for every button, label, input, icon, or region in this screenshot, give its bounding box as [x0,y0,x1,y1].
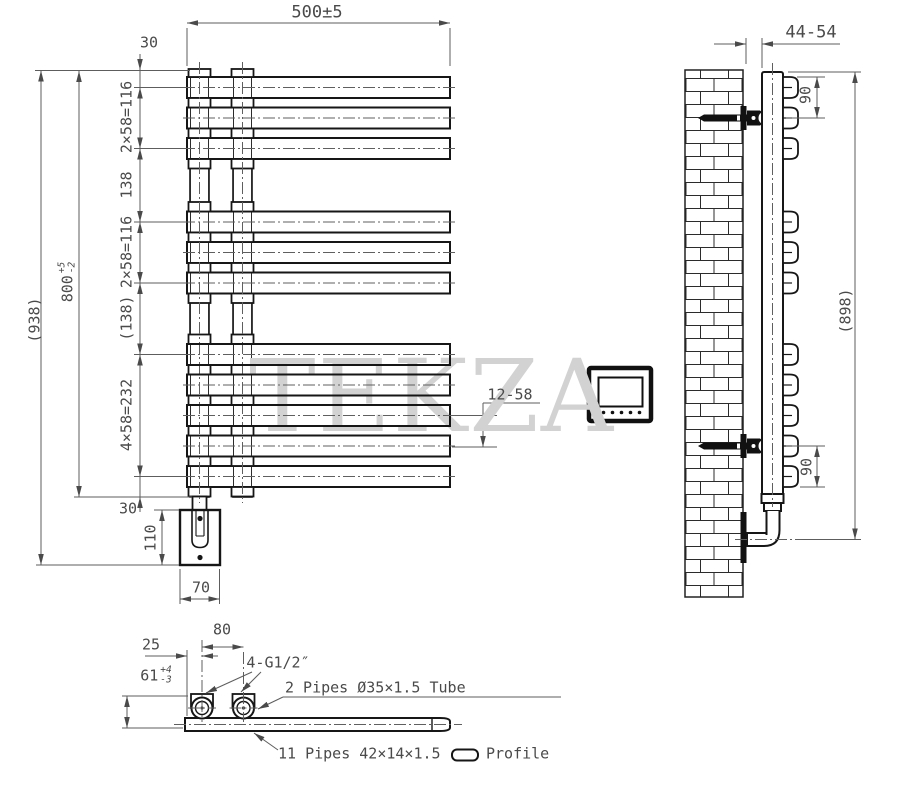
dim-edge-to-tube: 25 [142,638,160,653]
side-view [685,38,861,597]
dim-bracket-box-width: 70 [192,581,210,596]
dim-offset-top: 30 [140,36,158,51]
dim-gap-mid: (138) [120,295,135,340]
dim-bracket-top: 90 [799,86,814,104]
screw-icon [197,555,202,560]
dim-depth: 61+4-3 [140,666,172,687]
dim-pitch-mid: 2×58=116 [120,216,135,288]
dim-overall-height-front: (938) [28,297,43,342]
dim-offset-bottom: 30 [119,502,137,517]
technical-drawing-towel-radiator: TEKZA [0,0,900,788]
label-thread: 4-G1/2″ [246,656,309,671]
dim-hook-spacing: 12-58 [487,388,532,403]
pipe-stubs [783,77,798,487]
dim-overall-height-side: (898) [839,288,854,333]
heating-element-box [180,497,220,566]
tube-sections [191,694,255,719]
dim-wall-clearance: 44-54 [785,25,836,42]
dim-pitch-bottom: 4×58=232 [120,379,135,451]
section-view [122,640,561,761]
dim-tube-spacing: 80 [213,623,231,638]
note-tubes: 2 Pipes Ø35×1.5 Tube [285,681,466,696]
dim-width: 500±5 [291,5,342,22]
screw-icon [197,516,202,521]
note-pipes: 11 Pipes 42×14×1.5 [278,747,441,762]
wall [685,70,743,597]
profile-symbol-icon [452,750,478,761]
section-dimensions [122,647,561,750]
bottom-connection [747,494,784,546]
dim-bracket-bottom: 90 [800,458,815,476]
dim-pitch-top: 2×58=116 [120,81,135,153]
dim-height: 800+5-2 [58,262,79,303]
note-profile: Profile [486,747,549,762]
dim-bracket-box-height: 110 [144,524,159,551]
dim-gap-top: 138 [120,171,135,198]
